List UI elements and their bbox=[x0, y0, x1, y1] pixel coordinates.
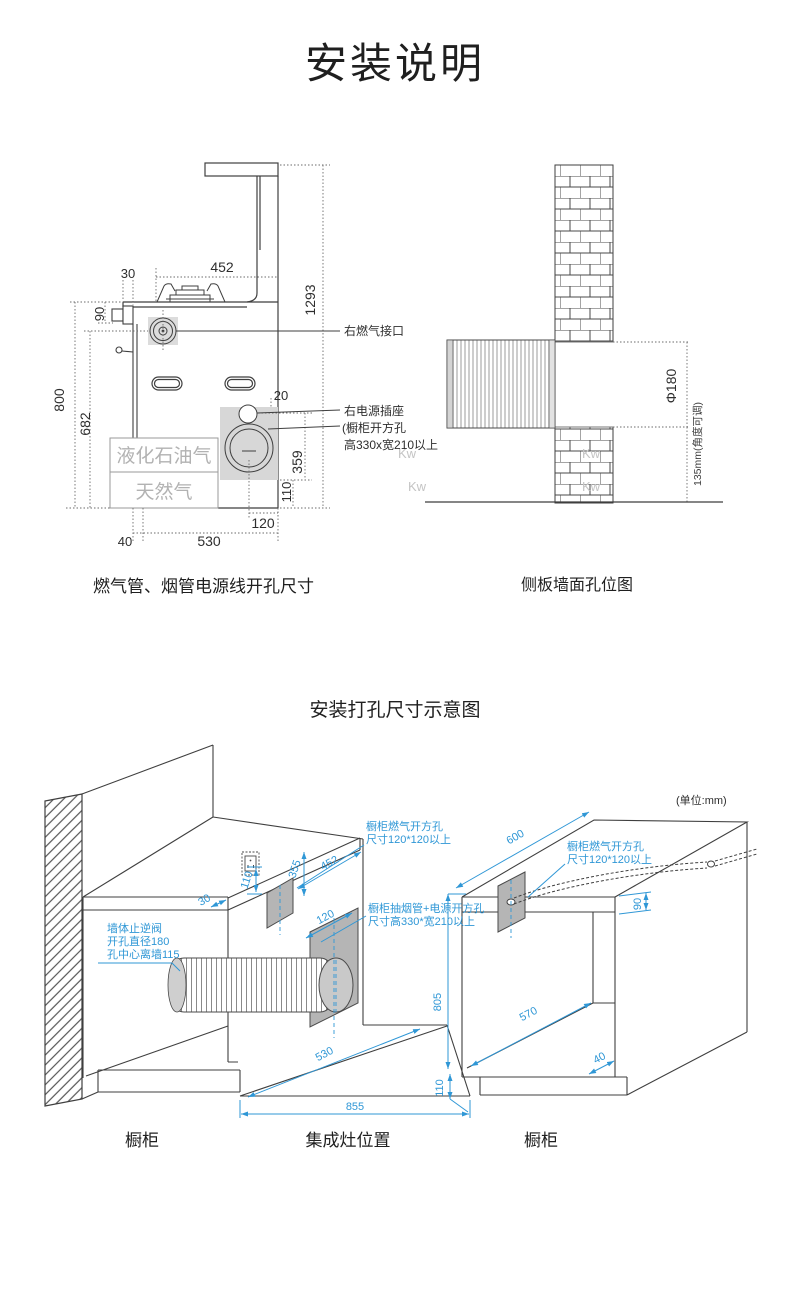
flexible-duct bbox=[447, 340, 555, 428]
smoke-hole-label-2: 尺寸高330*宽210以上 bbox=[368, 914, 475, 928]
dim-800: 800 bbox=[51, 388, 67, 412]
watermark-2: Kw bbox=[582, 446, 601, 461]
unit-note: (单位:mm) bbox=[676, 793, 727, 807]
gas-type-table: 液化石油气 天然气 bbox=[110, 438, 218, 508]
stove-position-caption: 集成灶位置 bbox=[306, 1131, 391, 1150]
wall-valve-label-2: 开孔直径180 bbox=[107, 934, 169, 948]
watermark-1: Kw bbox=[398, 446, 417, 461]
wall-hole-diagram: Φ180 135mm(角度可调) Kw Kw Kw Kw 侧板墙面孔位图 bbox=[398, 165, 723, 594]
gas-hole-mid-label-2: 尺寸120*120以上 bbox=[366, 832, 451, 846]
dim-20: 20 bbox=[274, 388, 288, 403]
bdim-530: 530 bbox=[314, 1045, 336, 1064]
gas-port-label: 右燃气接口 bbox=[344, 323, 404, 338]
dim-110: 110 bbox=[279, 482, 294, 503]
opening-sizes-diagram: 液化石油气 天然气 bbox=[51, 163, 438, 596]
cooktop-surface bbox=[123, 302, 278, 307]
watermark-3: Kw bbox=[408, 479, 427, 494]
bdim-30: 30 bbox=[196, 892, 213, 909]
cabinet-hole-label-1: (橱柜开方孔 bbox=[342, 420, 406, 435]
installation-instructions-page: 安装说明 bbox=[0, 0, 790, 1295]
cabinet-left-caption: 橱柜 bbox=[125, 1131, 159, 1150]
hatched-wall bbox=[45, 794, 82, 1106]
natural-gas-label: 天然气 bbox=[135, 481, 192, 503]
bdim-805: 805 bbox=[432, 993, 444, 1011]
bdim-90: 90 bbox=[632, 898, 644, 910]
dim-120: 120 bbox=[251, 515, 275, 531]
dim-135mm: 135mm(角度可调) bbox=[691, 402, 704, 486]
dim-dia-180: Φ180 bbox=[663, 369, 679, 404]
wall-valve-label-1: 墙体止逆阀 bbox=[107, 921, 162, 935]
duct-dim-lines bbox=[613, 342, 690, 502]
knob-icon bbox=[116, 347, 122, 353]
cabinet-hole-label-2: 高330x宽210以上 bbox=[344, 437, 438, 452]
bdim-855: 855 bbox=[346, 1101, 364, 1113]
bdim-110b: 110 bbox=[434, 1079, 446, 1097]
dim-359: 359 bbox=[289, 450, 305, 474]
dim-40: 40 bbox=[118, 534, 132, 549]
left-caption: 燃气管、烟管电源线开孔尺寸 bbox=[93, 577, 314, 596]
smoke-hole-label-1: 橱柜抽烟管+电源开方孔 bbox=[368, 901, 484, 915]
gas-hole-mid-label-1: 橱柜燃气开方孔 bbox=[366, 819, 443, 833]
dim-452: 452 bbox=[210, 259, 234, 275]
drilling-schematic: 安装打孔尺寸示意图 (单位:mm) bbox=[45, 699, 757, 1150]
lpg-label: 液化石油气 bbox=[116, 445, 211, 467]
bdim-40: 40 bbox=[591, 1050, 607, 1066]
power-socket-label: 右电源插座 bbox=[344, 403, 404, 418]
gas-hole-right-label-1: 橱柜燃气开方孔 bbox=[567, 839, 644, 853]
gas-hole-right-label-2: 尺寸120*120以上 bbox=[567, 852, 652, 866]
brick-wall-upper bbox=[555, 165, 613, 342]
dim-90: 90 bbox=[92, 307, 107, 321]
dim-682: 682 bbox=[77, 412, 93, 436]
side-valve bbox=[112, 306, 133, 353]
dim-1293: 1293 bbox=[302, 284, 318, 315]
burner bbox=[157, 284, 225, 302]
bdim-600: 600 bbox=[505, 828, 527, 848]
corrugated-duct bbox=[168, 958, 353, 1012]
diagram-canvas: 液化石油气 天然气 bbox=[0, 0, 790, 1295]
dim-530: 530 bbox=[197, 533, 221, 549]
wall-valve-label-3: 孔中心离墙115 bbox=[107, 947, 180, 961]
right-caption: 侧板墙面孔位图 bbox=[521, 576, 633, 594]
pipe-end bbox=[708, 861, 715, 867]
bdim-570: 570 bbox=[518, 1005, 540, 1024]
bottom-title: 安装打孔尺寸示意图 bbox=[309, 699, 480, 721]
power-socket-circle bbox=[239, 405, 257, 423]
vent-slots bbox=[152, 377, 255, 390]
bdim-452: 452 bbox=[319, 854, 341, 873]
dim-30: 30 bbox=[121, 266, 135, 281]
watermark-4: Kw bbox=[582, 479, 601, 494]
cabinet-right-caption: 橱柜 bbox=[524, 1131, 558, 1150]
